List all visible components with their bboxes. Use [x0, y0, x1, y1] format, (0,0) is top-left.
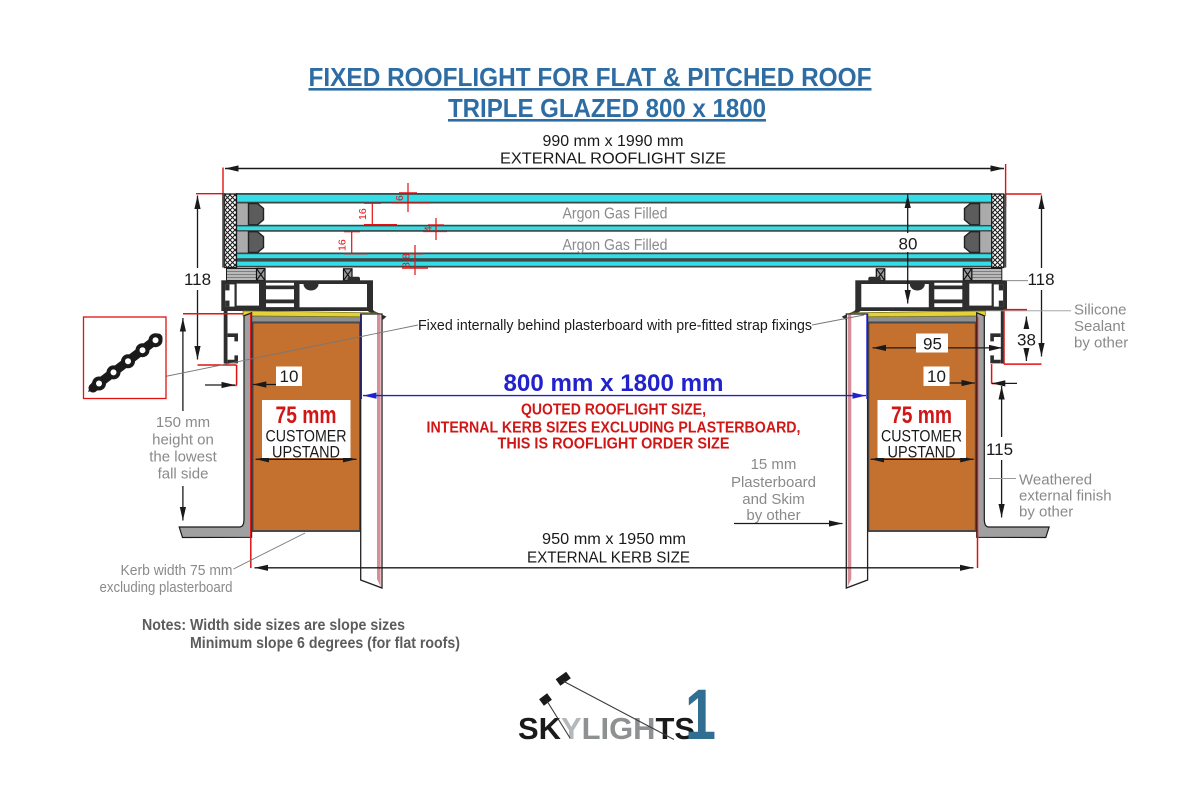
svg-text:EXTERNAL ROOFLIGHT SIZE: EXTERNAL ROOFLIGHT SIZE — [500, 151, 726, 168]
svg-text:115: 115 — [986, 440, 1013, 459]
svg-text:6: 6 — [394, 195, 406, 201]
svg-text:15 mm: 15 mm — [751, 456, 797, 473]
svg-text:4: 4 — [423, 226, 435, 232]
svg-text:8.8: 8.8 — [401, 253, 413, 268]
svg-text:Fixed internally behind plaste: Fixed internally behind plasterboard wit… — [418, 318, 812, 334]
svg-text:UPSTAND: UPSTAND — [888, 444, 956, 462]
svg-text:10: 10 — [927, 367, 946, 386]
svg-text:16: 16 — [357, 208, 369, 220]
svg-text:UPSTAND: UPSTAND — [272, 444, 340, 462]
svg-text:Weathered: Weathered — [1019, 472, 1092, 489]
svg-text:990 mm x 1990 mm: 990 mm x 1990 mm — [543, 133, 684, 150]
svg-text:118: 118 — [184, 270, 211, 289]
svg-text:75 mm: 75 mm — [276, 402, 337, 429]
svg-text:and Skim: and Skim — [742, 491, 805, 508]
svg-text:16: 16 — [337, 239, 349, 251]
svg-text:TRIPLE GLAZED 800 x 1800: TRIPLE GLAZED 800 x 1800 — [448, 93, 766, 123]
svg-text:QUOTED ROOFLIGHT SIZE,: QUOTED ROOFLIGHT SIZE, — [521, 402, 706, 419]
svg-text:Plasterboard: Plasterboard — [731, 474, 816, 491]
svg-text:EXTERNAL KERB SIZE: EXTERNAL KERB SIZE — [527, 550, 690, 567]
svg-text:950 mm x 1950 mm: 950 mm x 1950 mm — [542, 531, 686, 548]
svg-text:Argon Gas Filled: Argon Gas Filled — [563, 206, 668, 223]
svg-text:SKYLIGHTS: SKYLIGHTS — [518, 712, 695, 746]
svg-text:INTERNAL KERB SIZES EXCLUDING: INTERNAL KERB SIZES EXCLUDING PLASTERBOA… — [427, 420, 801, 437]
svg-text:the lowest: the lowest — [149, 449, 217, 466]
svg-text:by other: by other — [1019, 504, 1073, 521]
svg-text:1: 1 — [685, 676, 716, 755]
svg-text:150 mm: 150 mm — [156, 414, 210, 431]
svg-text:by other: by other — [1074, 335, 1128, 352]
svg-text:height on: height on — [152, 432, 214, 449]
svg-text:by other: by other — [746, 507, 800, 524]
svg-text:Silicone: Silicone — [1074, 302, 1127, 319]
svg-text:75 mm: 75 mm — [891, 402, 952, 429]
svg-text:THIS IS ROOFLIGHT ORDER SIZE: THIS IS ROOFLIGHT ORDER SIZE — [498, 436, 730, 453]
svg-text:Minimum slope 6 degrees (for f: Minimum slope 6 degrees (for flat roofs) — [190, 635, 460, 652]
svg-text:Argon Gas Filled: Argon Gas Filled — [563, 237, 668, 254]
svg-text:excluding plasterboard: excluding plasterboard — [100, 579, 233, 596]
svg-text:external finish: external finish — [1019, 488, 1112, 505]
svg-text:Kerb width 75 mm: Kerb width 75 mm — [121, 562, 233, 579]
svg-text:Sealant: Sealant — [1074, 318, 1126, 335]
svg-text:80: 80 — [899, 235, 918, 254]
svg-text:95: 95 — [923, 335, 942, 354]
svg-text:800 mm x 1800 mm: 800 mm x 1800 mm — [504, 370, 724, 397]
svg-text:fall side: fall side — [158, 466, 209, 483]
svg-text:FIXED ROOFLIGHT FOR FLAT & PIT: FIXED ROOFLIGHT FOR FLAT & PITCHED ROOF — [309, 62, 872, 92]
svg-text:118: 118 — [1027, 270, 1054, 289]
svg-text:Notes: Width side sizes are sl: Notes: Width side sizes are slope sizes — [142, 617, 405, 634]
svg-text:38: 38 — [1017, 331, 1036, 350]
svg-text:10: 10 — [280, 367, 299, 386]
